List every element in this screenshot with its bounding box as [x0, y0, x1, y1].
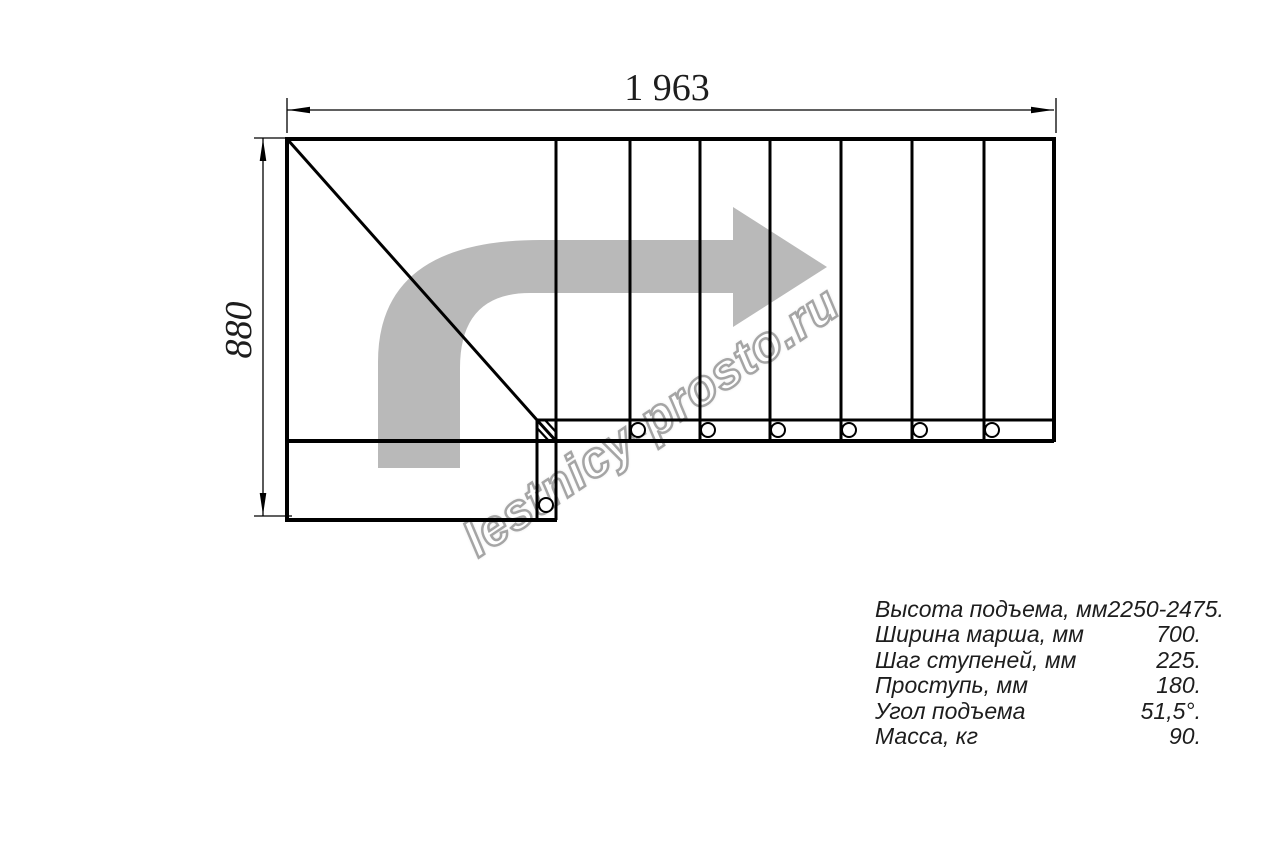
spec-row: Ширина марша, мм 700.: [875, 622, 1201, 647]
spec-value: 180.: [1156, 673, 1201, 698]
spec-label: Масса, кг: [875, 724, 978, 749]
bolt-circle: [631, 423, 645, 437]
spec-value: 51,5°.: [1141, 699, 1201, 724]
spec-value: 90.: [1169, 724, 1201, 749]
spec-row: Шаг ступеней, мм 225.: [875, 648, 1201, 673]
spec-row: Масса, кг 90.: [875, 724, 1201, 749]
bolt-circle: [985, 423, 999, 437]
spec-value: 225.: [1156, 648, 1201, 673]
spec-label: Высота подъема, мм: [875, 597, 1108, 622]
specs-table: Высота подъема, мм 2250-2475. Ширина мар…: [875, 597, 1201, 749]
dim-arrow-up-icon: [260, 139, 267, 161]
step-dividers: [630, 139, 984, 441]
spec-label: Угол подъема: [875, 699, 1025, 724]
bolt-circle: [701, 423, 715, 437]
landing-diagonal: [288, 140, 537, 420]
bolt-circle: [539, 498, 553, 512]
bolt-circle: [771, 423, 785, 437]
staircase-outline: [285, 137, 1054, 520]
dim-arrow-left-icon: [288, 107, 310, 114]
spec-label: Проступь, мм: [875, 673, 1028, 698]
dimension-height-label: 880: [217, 302, 261, 359]
spec-row: Угол подъема 51,5°.: [875, 699, 1201, 724]
spec-label: Шаг ступеней, мм: [875, 648, 1076, 673]
dim-arrow-down-icon: [260, 493, 267, 515]
spec-value: 2250-2475.: [1108, 597, 1224, 622]
bolt-circle: [842, 423, 856, 437]
dim-arrow-right-icon: [1031, 107, 1053, 114]
dimension-width-label: 1 963: [624, 66, 710, 110]
spec-row: Проступь, мм 180.: [875, 673, 1201, 698]
spec-value: 700.: [1156, 622, 1201, 647]
bolt-circle: [913, 423, 927, 437]
spec-label: Ширина марша, мм: [875, 622, 1084, 647]
corner-post-hatch: [537, 420, 556, 441]
staircase-drawing-canvas: lestnicy-prosto.ru: [0, 0, 1280, 853]
spec-row: Высота подъема, мм 2250-2475.: [875, 597, 1201, 622]
